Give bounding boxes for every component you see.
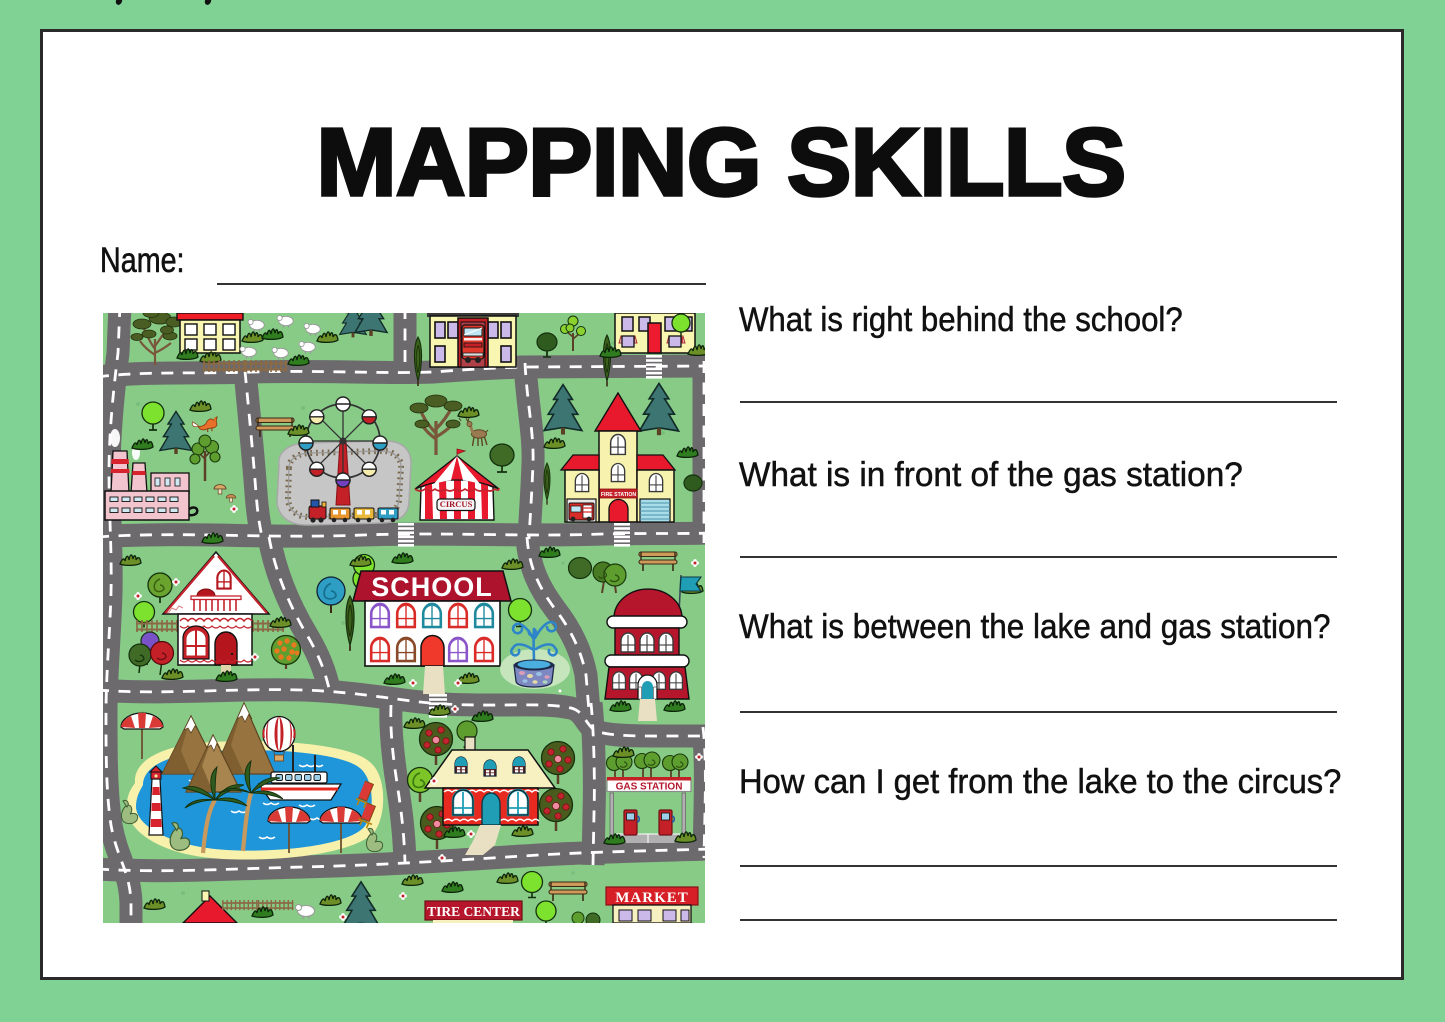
svg-text:FIRE STATION: FIRE STATION: [601, 492, 637, 498]
svg-text:MARKET: MARKET: [615, 890, 689, 906]
svg-text:CIRCUS: CIRCUS: [440, 499, 473, 509]
svg-text:GAS STATION: GAS STATION: [616, 782, 683, 793]
svg-text:SCHOOL: SCHOOL: [371, 572, 493, 602]
svg-text:TIRE CENTER: TIRE CENTER: [427, 904, 520, 919]
